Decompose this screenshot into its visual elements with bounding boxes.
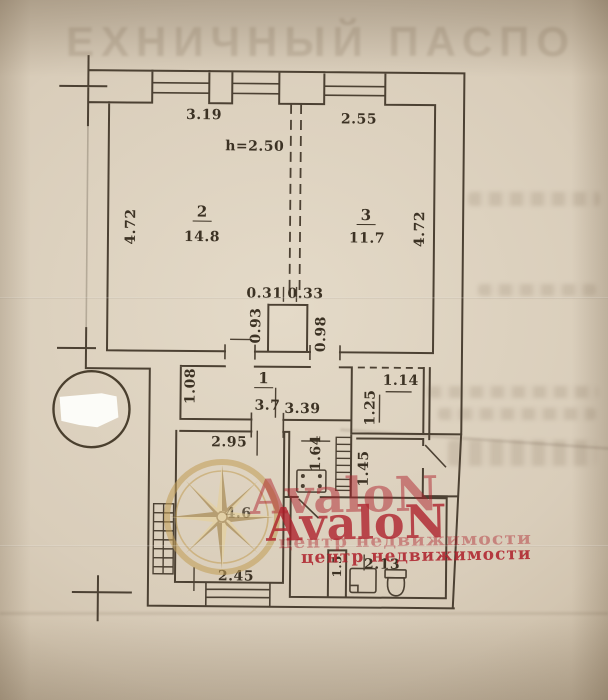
floor-plan-lines [0, 0, 608, 700]
dim-213: 2.13 [364, 557, 400, 573]
dim-room3-width: 2.55 [341, 111, 377, 127]
dim-295: 2.95 [211, 434, 247, 450]
dim-room2-width: 3.19 [186, 107, 222, 123]
faded-wall [86, 125, 88, 328]
room2-area: 14.8 [184, 229, 220, 245]
hatched-wall-section [153, 504, 174, 574]
dim-125: 1.25 [362, 389, 378, 425]
vent-shaft-hatch [336, 437, 351, 490]
room2-number: 2 [193, 203, 212, 222]
room3-number: 3 [357, 206, 376, 225]
toilet-symbol [385, 570, 406, 596]
stove-symbol [297, 470, 326, 492]
dim-098: 0.98 [313, 316, 329, 352]
window-symbols [148, 83, 386, 608]
hall-area: 3.7 [255, 398, 281, 414]
dim-room3-depth: 4.72 [412, 211, 428, 247]
stamp-circle [53, 371, 130, 448]
dim-245: 2.45 [218, 568, 254, 584]
dim-145: 1.45 [356, 450, 372, 486]
dim-033: 0.33 [287, 286, 323, 302]
dim-108: 1.08 [183, 368, 199, 404]
dim-114: 1.14 [383, 373, 419, 389]
dim-15: 1.5 [330, 555, 344, 578]
dim-031: 0.31 [246, 285, 282, 301]
floor-plan-photo: ЕХНИЧНЫЙ ПАСПО [0, 0, 608, 700]
dim-room2-depth: 4.72 [123, 208, 139, 244]
floor-plan-drawing: 3.19 2.55 h=2.50 2 14.8 3 11.7 4.72 4.72… [0, 0, 608, 700]
room3-area: 11.7 [349, 230, 385, 246]
redaction-blob [59, 393, 118, 428]
kitchen-label: 4.6 [226, 505, 252, 521]
dim-093: 0.93 [248, 307, 264, 343]
dim-164: 1.64 [308, 435, 324, 471]
hall-width: 3.39 [284, 401, 320, 417]
hall-number: 1 [254, 369, 273, 388]
ceiling-height-label: h=2.50 [225, 138, 284, 155]
